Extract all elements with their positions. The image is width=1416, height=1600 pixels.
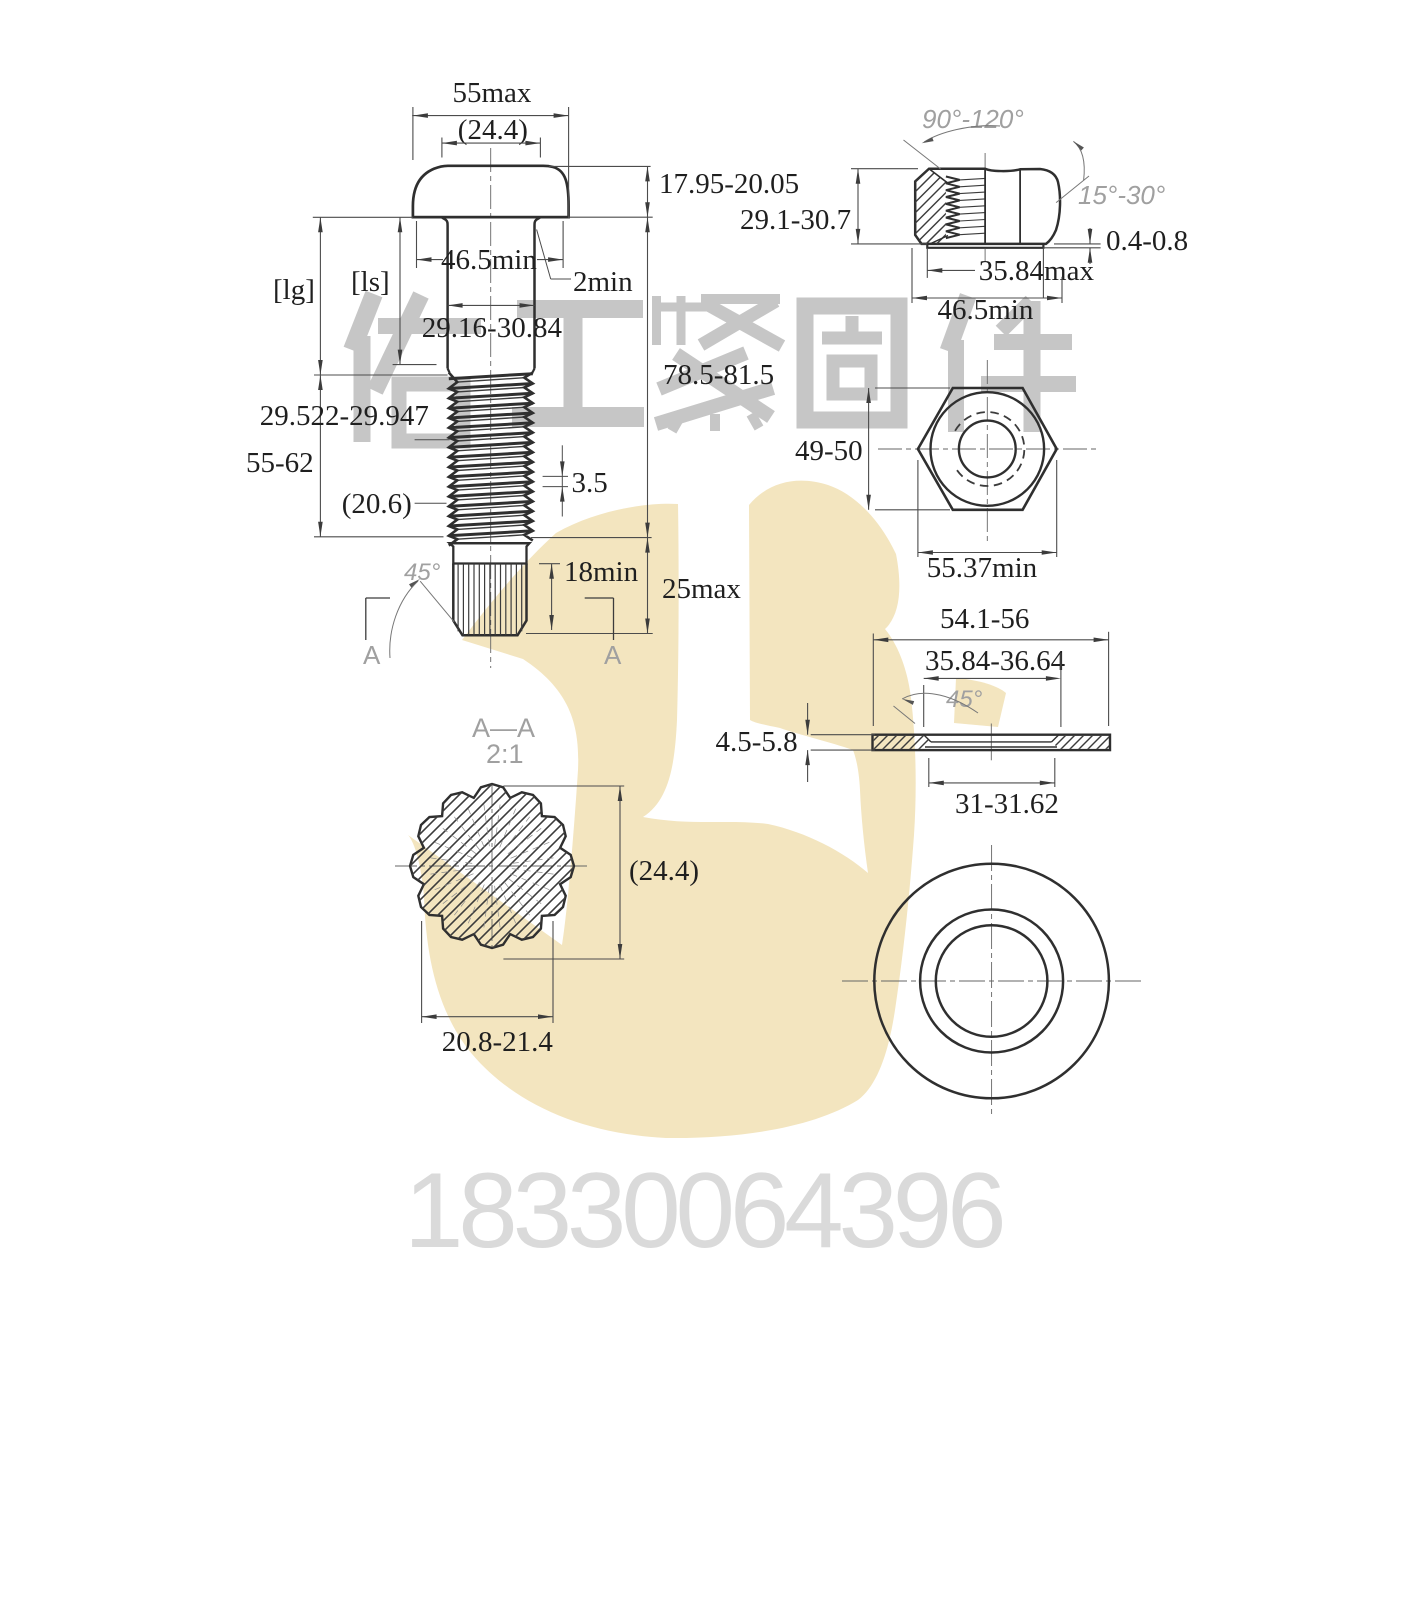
svg-text:35.84max: 35.84max: [979, 255, 1095, 287]
svg-text:2min: 2min: [573, 266, 633, 298]
svg-text:20.8-21.4: 20.8-21.4: [442, 1026, 554, 1058]
svg-text:55max: 55max: [453, 77, 532, 109]
svg-text:45°: 45°: [946, 686, 983, 713]
svg-text:0.4-0.8: 0.4-0.8: [1106, 225, 1188, 257]
svg-text:18330064396: 18330064396: [404, 1150, 1002, 1270]
svg-text:46.5min: 46.5min: [441, 244, 537, 276]
svg-text:29.522-29.947: 29.522-29.947: [260, 400, 429, 432]
svg-text:90°-120°: 90°-120°: [922, 104, 1024, 134]
svg-text:[lg]: [lg]: [273, 274, 315, 306]
svg-text:45°: 45°: [404, 559, 441, 586]
svg-text:35.84-36.64: 35.84-36.64: [925, 645, 1066, 677]
svg-text:A: A: [604, 640, 622, 670]
svg-text:25max: 25max: [662, 573, 741, 605]
svg-text:29.16-30.84: 29.16-30.84: [422, 312, 563, 344]
svg-text:55-62: 55-62: [246, 447, 314, 479]
svg-text:(24.4): (24.4): [458, 114, 528, 146]
svg-text:15°-30°: 15°-30°: [1078, 180, 1165, 210]
svg-text:31-31.62: 31-31.62: [955, 788, 1059, 820]
svg-text:A: A: [363, 640, 381, 670]
svg-text:55.37min: 55.37min: [927, 552, 1038, 584]
svg-text:3.5: 3.5: [572, 467, 608, 499]
svg-text:(20.6): (20.6): [342, 488, 412, 520]
svg-text:29.1-30.7: 29.1-30.7: [740, 204, 851, 236]
svg-text:2:1: 2:1: [486, 739, 524, 769]
svg-text:4.5-5.8: 4.5-5.8: [716, 726, 798, 758]
svg-text:(24.4): (24.4): [629, 855, 699, 887]
svg-text:46.5min: 46.5min: [938, 294, 1034, 326]
svg-text:18min: 18min: [564, 556, 639, 588]
svg-text:49-50: 49-50: [795, 435, 863, 467]
svg-text:[ls]: [ls]: [351, 266, 390, 298]
svg-text:17.95-20.05: 17.95-20.05: [659, 168, 799, 200]
svg-text:78.5-81.5: 78.5-81.5: [663, 359, 774, 391]
svg-text:54.1-56: 54.1-56: [940, 603, 1029, 635]
